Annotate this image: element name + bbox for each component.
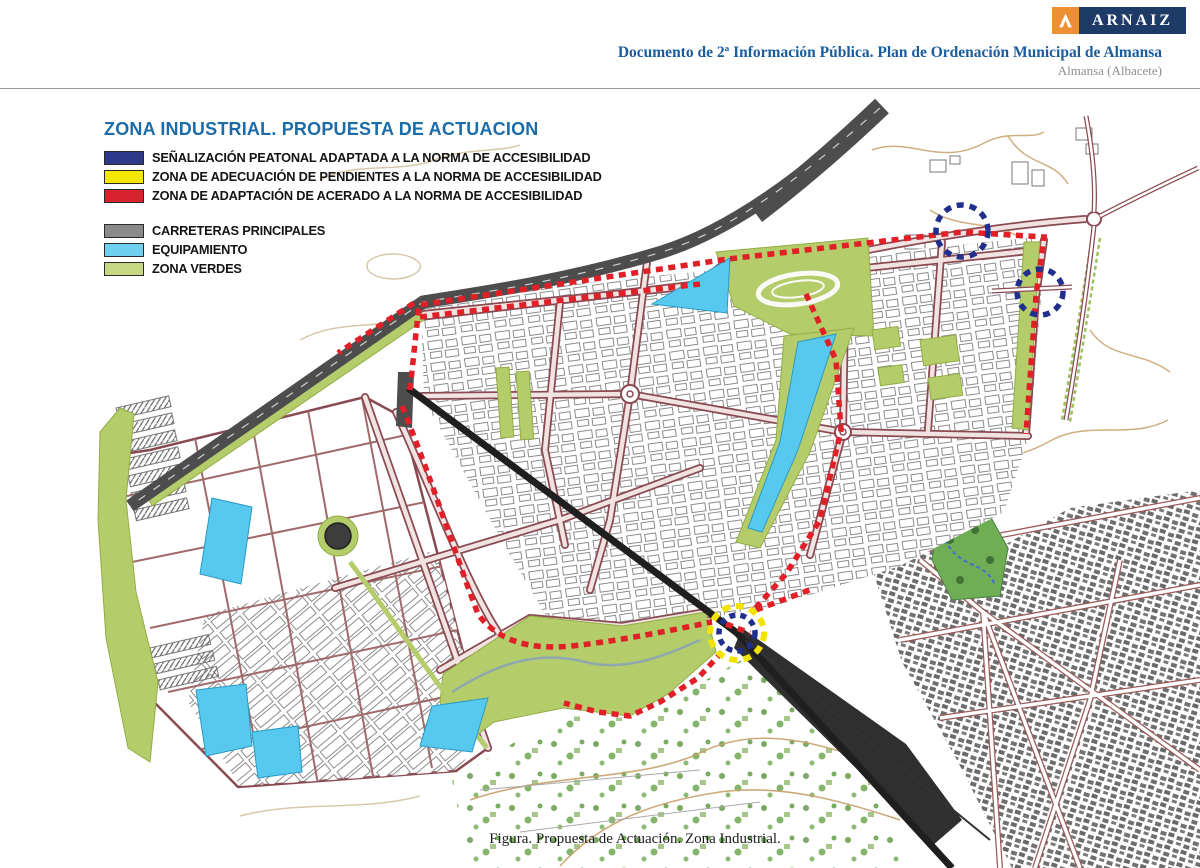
legend-swatch xyxy=(104,224,144,238)
arnaiz-logo: ARNAIZ xyxy=(1052,7,1186,34)
legend-row: ZONA DE ADAPTACIÓN DE ACERADO A LA NORMA… xyxy=(104,186,602,205)
legend-row: ZONA VERDES xyxy=(104,259,325,278)
map-title: ZONA INDUSTRIAL. PROPUESTA DE ACTUACION xyxy=(104,119,538,140)
legend-actuation: SEÑALIZACIÓN PEATONAL ADAPTADA A LA NORM… xyxy=(104,148,602,205)
legend-base: CARRETERAS PRINCIPALES EQUIPAMIENTO ZONA… xyxy=(104,221,325,278)
document-subtitle: Almansa (Albacete) xyxy=(662,63,1162,79)
arnaiz-a-icon xyxy=(1052,7,1079,34)
legend-label: ZONA VERDES xyxy=(152,261,242,276)
legend-swatch xyxy=(104,189,144,203)
legend-swatch xyxy=(104,243,144,257)
legend-label: EQUIPAMIENTO xyxy=(152,242,247,257)
legend-label: CARRETERAS PRINCIPALES xyxy=(152,223,325,238)
legend-row: ZONA DE ADECUACIÓN DE PENDIENTES A LA NO… xyxy=(104,167,602,186)
legend-swatch xyxy=(104,170,144,184)
arnaiz-logo-box: ARNAIZ xyxy=(1079,7,1186,34)
legend-row: SEÑALIZACIÓN PEATONAL ADAPTADA A LA NORM… xyxy=(104,148,602,167)
figure-caption: Figura. Propuesta de Actuación. Zona Ind… xyxy=(35,831,1200,848)
document-title: Documento de 2ª Información Pública. Pla… xyxy=(262,44,1162,62)
arnaiz-logo-text: ARNAIZ xyxy=(1092,12,1173,30)
legend-label: ZONA DE ADAPTACIÓN DE ACERADO A LA NORMA… xyxy=(152,188,582,203)
legend-swatch xyxy=(104,151,144,165)
legend-swatch xyxy=(104,262,144,276)
header-divider xyxy=(0,88,1200,89)
legend-label: ZONA DE ADECUACIÓN DE PENDIENTES A LA NO… xyxy=(152,169,602,184)
legend-row: CARRETERAS PRINCIPALES xyxy=(104,221,325,240)
legend-row: EQUIPAMIENTO xyxy=(104,240,325,259)
legend-label: SEÑALIZACIÓN PEATONAL ADAPTADA A LA NORM… xyxy=(152,150,590,165)
